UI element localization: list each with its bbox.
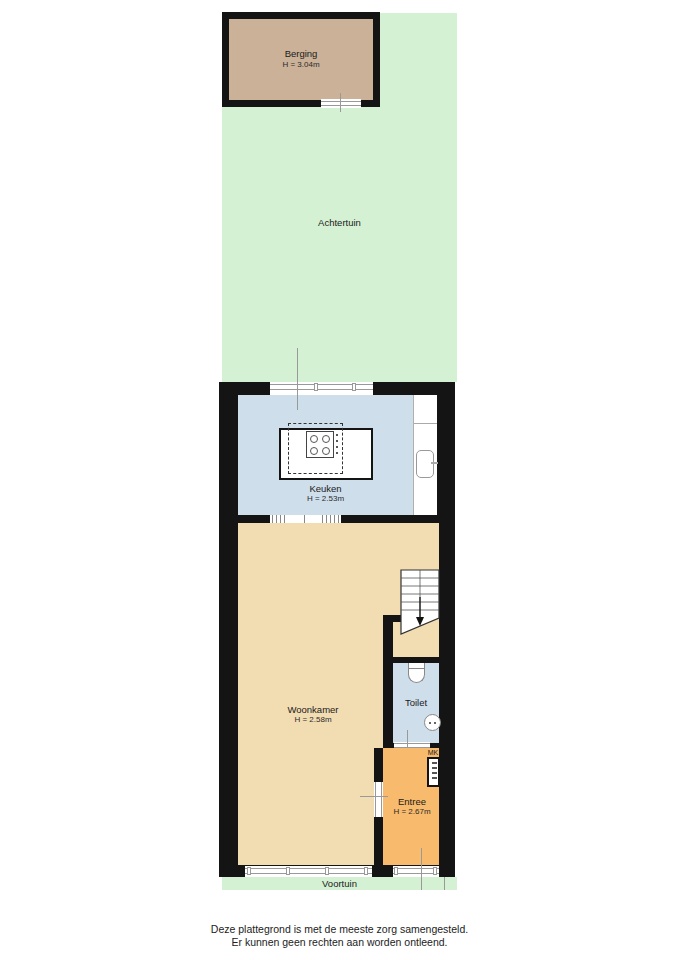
berging-door-line	[340, 93, 341, 112]
woonkamer-label: Woonkamer	[238, 704, 388, 715]
keuken-height-label: H = 2.53m	[238, 494, 413, 504]
kitchen-livingroom-opening	[270, 515, 341, 523]
toilet-sink-icon	[424, 714, 441, 731]
berging-label: Berging	[229, 48, 373, 59]
footer-disclaimer-line1: Deze plattegrond is met de meeste zorg s…	[0, 923, 679, 935]
kitchen-sink-icon	[416, 450, 434, 478]
front-door-line	[421, 848, 422, 890]
floor-plan: Achtertuin Voortuin Berging H = 3.04m Ke	[0, 0, 679, 960]
mk-label: MK	[424, 749, 442, 757]
staircase	[400, 569, 440, 635]
entree-height-label: H = 2.67m	[383, 807, 441, 817]
kitchen-window	[270, 382, 373, 395]
island-counter-dashed-outline	[288, 423, 343, 474]
livingroom-window	[245, 866, 372, 877]
voortuin-divider-line	[444, 877, 445, 890]
front-door	[393, 866, 439, 877]
entree-label: Entree	[383, 796, 441, 807]
berging-door	[321, 99, 361, 108]
meter-cupboard	[427, 757, 440, 787]
kitchen-faucet-icon	[431, 462, 438, 464]
entree-woonkamer-door	[374, 782, 383, 817]
footer-disclaimer-line2: Er kunnen geen rechten aan worden ontlee…	[0, 936, 679, 948]
woonkamer-floor	[238, 523, 374, 865]
woonkamer-height-label: H = 2.58m	[238, 715, 388, 725]
kitchen-window-line	[297, 348, 298, 410]
toilet-label: Toilet	[393, 697, 439, 708]
achtertuin-label: Achtertuin	[222, 217, 457, 228]
toilet-bowl-icon	[408, 663, 425, 683]
keuken-label: Keuken	[238, 483, 413, 494]
berging-height-label: H = 3.04m	[229, 60, 373, 70]
